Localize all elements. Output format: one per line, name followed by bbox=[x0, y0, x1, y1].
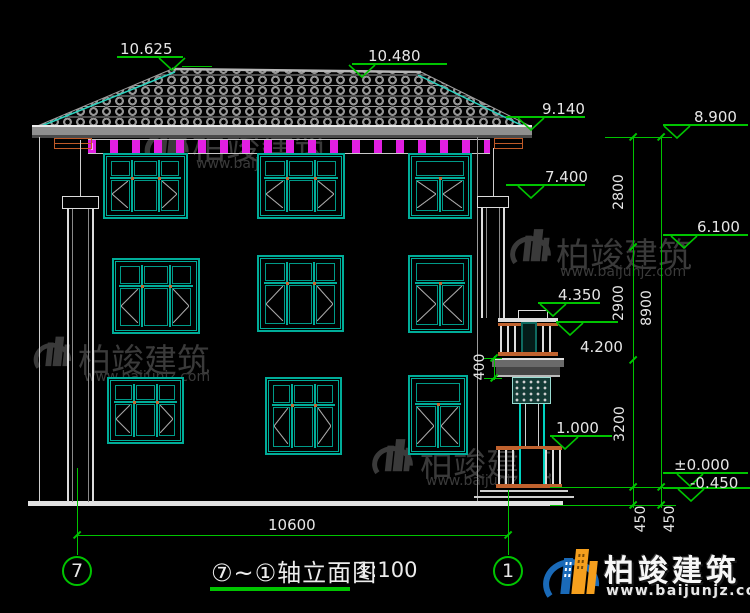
balcony-center-panel bbox=[521, 322, 537, 356]
casement-mark bbox=[162, 181, 177, 195]
wall-right-edge bbox=[477, 137, 478, 501]
casement-mark bbox=[116, 419, 130, 433]
watermark-logo-icon bbox=[504, 222, 554, 272]
porch-column-shaft bbox=[519, 404, 545, 449]
casement-mark bbox=[317, 286, 333, 303]
window-mullion bbox=[313, 262, 315, 325]
window-transom bbox=[264, 177, 338, 179]
mullion-joint-dot bbox=[314, 404, 317, 407]
casement-mark bbox=[121, 289, 138, 306]
window-mullion bbox=[169, 265, 171, 327]
level-triangle bbox=[551, 436, 579, 451]
eave-corbel-right bbox=[494, 138, 523, 149]
window-mullion bbox=[133, 384, 135, 437]
balcony-slab-lower bbox=[496, 367, 560, 377]
vertical-dim-label: 3200 bbox=[612, 406, 628, 442]
window bbox=[408, 153, 472, 219]
window-transom bbox=[264, 282, 337, 284]
window-pane bbox=[273, 385, 290, 403]
casement-mark bbox=[443, 304, 462, 322]
casement-mark bbox=[318, 408, 331, 426]
mullion-joint-dot bbox=[141, 285, 144, 288]
porch-balusters-right bbox=[545, 450, 561, 484]
mullion-joint-dot bbox=[439, 282, 442, 285]
casement-mark bbox=[441, 407, 458, 425]
window bbox=[408, 255, 472, 333]
casement-mark bbox=[274, 408, 288, 426]
level-label: 10.625 bbox=[120, 40, 173, 58]
window-mullion bbox=[286, 262, 288, 325]
window-mullion bbox=[131, 160, 133, 212]
casement-mark bbox=[417, 194, 436, 208]
casement-mark bbox=[266, 194, 283, 208]
level-label: -0.450 bbox=[690, 474, 738, 492]
window-pane bbox=[136, 404, 155, 436]
casement-mark bbox=[160, 419, 173, 433]
footer-url: www.baijunjz.com bbox=[606, 583, 750, 599]
window-pane bbox=[161, 161, 179, 176]
casement-mark bbox=[318, 194, 334, 208]
axis-bubble-7: 7 bbox=[62, 556, 92, 586]
watermark-url: www.baijunjz.com bbox=[560, 264, 686, 280]
ground-line bbox=[28, 501, 563, 506]
window-pane bbox=[144, 266, 168, 284]
level-triangle bbox=[517, 117, 545, 132]
mullion-joint-dot bbox=[286, 282, 289, 285]
window-mullion bbox=[141, 265, 143, 327]
balcony-slab-upper bbox=[492, 358, 564, 367]
casement-mark bbox=[318, 181, 334, 195]
left-column-shaft bbox=[67, 209, 94, 502]
level-label: 4.350 bbox=[558, 286, 601, 304]
window-pane bbox=[136, 385, 155, 400]
window-pane bbox=[294, 385, 313, 403]
dimension-line bbox=[661, 137, 663, 508]
wall-left-edge bbox=[39, 137, 40, 501]
window-pane bbox=[289, 180, 313, 211]
balcony-bottom-rail bbox=[498, 352, 558, 356]
vertical-dim-label: 450 bbox=[662, 506, 678, 533]
mullion-joint-dot bbox=[291, 404, 294, 407]
dimension-line bbox=[182, 66, 212, 68]
casement-mark bbox=[417, 304, 436, 322]
vertical-dim-label: 450 bbox=[633, 506, 649, 533]
casement-mark bbox=[160, 405, 173, 419]
casement-mark bbox=[173, 289, 189, 306]
casement-mark bbox=[266, 304, 283, 321]
window-transom bbox=[119, 285, 193, 287]
casement-mark bbox=[417, 286, 436, 304]
window-mullion bbox=[156, 384, 158, 437]
mullion-joint-dot bbox=[437, 403, 440, 406]
window-transom bbox=[114, 401, 177, 403]
window-transom bbox=[110, 177, 181, 179]
casement-mark bbox=[121, 306, 138, 323]
window bbox=[112, 258, 200, 334]
casement-mark bbox=[266, 286, 283, 303]
window-pane bbox=[416, 263, 464, 281]
level-label: 10.480 bbox=[368, 47, 421, 65]
right-column-capital bbox=[477, 196, 509, 208]
window-pane bbox=[416, 161, 464, 176]
window bbox=[408, 375, 468, 455]
eave-corbel-left bbox=[54, 138, 92, 149]
level-label: 7.400 bbox=[545, 168, 588, 186]
porch-step-1 bbox=[480, 490, 568, 492]
level-triangle bbox=[556, 322, 584, 337]
window-pane bbox=[265, 161, 285, 176]
window bbox=[107, 377, 184, 444]
casement-mark bbox=[443, 286, 462, 304]
window-pane bbox=[294, 407, 313, 447]
window-pane bbox=[111, 161, 130, 176]
window-pane bbox=[289, 263, 312, 281]
casement-mark bbox=[417, 426, 434, 444]
casement-mark bbox=[274, 426, 288, 444]
level-triangle bbox=[670, 235, 698, 250]
porch-balusters-left bbox=[498, 450, 519, 484]
window-mullion bbox=[437, 403, 439, 448]
porch-step-2 bbox=[474, 496, 574, 498]
level-label: 4.200 bbox=[580, 338, 623, 356]
right-column-shaft bbox=[481, 208, 505, 318]
level-label: 1.000 bbox=[556, 419, 599, 437]
casement-mark bbox=[318, 426, 331, 444]
window-mullion bbox=[439, 282, 441, 326]
casement-mark bbox=[443, 194, 462, 208]
porch-column-base bbox=[519, 449, 545, 488]
window-mullion bbox=[314, 384, 316, 448]
left-column-capital bbox=[62, 196, 99, 209]
left-column-support bbox=[80, 140, 81, 196]
window-mullion bbox=[291, 384, 293, 448]
dimension-line bbox=[77, 535, 508, 537]
level-label: 9.140 bbox=[542, 100, 585, 118]
casement-mark bbox=[417, 407, 434, 425]
mullion-joint-dot bbox=[158, 177, 161, 180]
window-pane bbox=[134, 161, 156, 176]
level-label: ±0.000 bbox=[674, 456, 730, 474]
dimension-line bbox=[633, 137, 635, 508]
corinthian-capital bbox=[512, 377, 551, 404]
window-pane bbox=[289, 161, 313, 176]
level-triangle bbox=[663, 125, 691, 140]
window-pane bbox=[416, 383, 460, 402]
level-triangle bbox=[539, 303, 567, 318]
casement-mark bbox=[417, 181, 436, 195]
drawing-scale: 1:100 bbox=[357, 558, 418, 582]
right-column-support bbox=[493, 148, 494, 196]
mullion-joint-dot bbox=[314, 177, 317, 180]
dimension-line bbox=[77, 468, 79, 555]
dimension-line bbox=[508, 490, 510, 555]
window-pane bbox=[144, 288, 168, 326]
window bbox=[257, 255, 344, 332]
vertical-dim-label: 400 bbox=[472, 354, 488, 381]
vertical-dim-label: 2900 bbox=[611, 285, 627, 321]
mullion-joint-dot bbox=[313, 282, 316, 285]
casement-mark bbox=[116, 405, 130, 419]
window-pane bbox=[120, 266, 140, 284]
window-pane bbox=[317, 385, 333, 403]
vertical-dim-label: 2800 bbox=[611, 174, 627, 210]
window-mullion bbox=[439, 177, 441, 212]
casement-mark bbox=[266, 181, 283, 195]
window-pane bbox=[115, 385, 132, 400]
level-triangle bbox=[517, 185, 545, 200]
level-triangle bbox=[158, 57, 186, 72]
mullion-joint-dot bbox=[131, 177, 134, 180]
casement-mark bbox=[443, 181, 462, 195]
axis-bubble-1: 1 bbox=[493, 556, 523, 586]
casement-mark bbox=[112, 181, 128, 195]
window bbox=[257, 153, 345, 219]
mullion-joint-dot bbox=[286, 177, 289, 180]
casement-mark bbox=[173, 306, 189, 323]
mullion-joint-dot bbox=[439, 177, 442, 180]
window-pane bbox=[172, 266, 191, 284]
casement-mark bbox=[317, 304, 333, 321]
level-label: 8.900 bbox=[694, 108, 737, 126]
vertical-dim-label: 8900 bbox=[639, 290, 655, 326]
level-label: 6.100 bbox=[697, 218, 740, 236]
window-mullion bbox=[286, 160, 288, 212]
casement-mark bbox=[162, 194, 177, 208]
window-pane bbox=[289, 285, 312, 324]
footer-logo-icon bbox=[534, 540, 606, 608]
eave-fascia bbox=[32, 125, 532, 138]
window-pane bbox=[316, 263, 335, 281]
window-mullion bbox=[314, 160, 316, 212]
window-pane bbox=[159, 385, 175, 400]
window-pane bbox=[134, 180, 156, 211]
mullion-joint-dot bbox=[156, 401, 159, 404]
dentil-band bbox=[88, 139, 490, 154]
horizontal-dim-label: 10600 bbox=[268, 516, 316, 534]
window-pane bbox=[317, 161, 336, 176]
title-underline bbox=[210, 587, 350, 591]
roof-edge-lines bbox=[35, 64, 532, 128]
window-transom bbox=[272, 404, 335, 406]
window-mullion bbox=[158, 160, 160, 212]
cad-elevation-drawing: ⑦~①轴立面图 1:100 7 1 柏竣建筑 www.baijunjz.com … bbox=[0, 0, 750, 613]
level-triangle bbox=[348, 64, 376, 79]
window bbox=[103, 153, 188, 219]
mullion-joint-dot bbox=[169, 285, 172, 288]
drawing-title: ⑦~①轴立面图 bbox=[211, 553, 377, 588]
casement-mark bbox=[441, 426, 458, 444]
casement-mark bbox=[112, 194, 128, 208]
window bbox=[265, 377, 342, 455]
mullion-joint-dot bbox=[133, 401, 136, 404]
window-pane bbox=[265, 263, 285, 281]
